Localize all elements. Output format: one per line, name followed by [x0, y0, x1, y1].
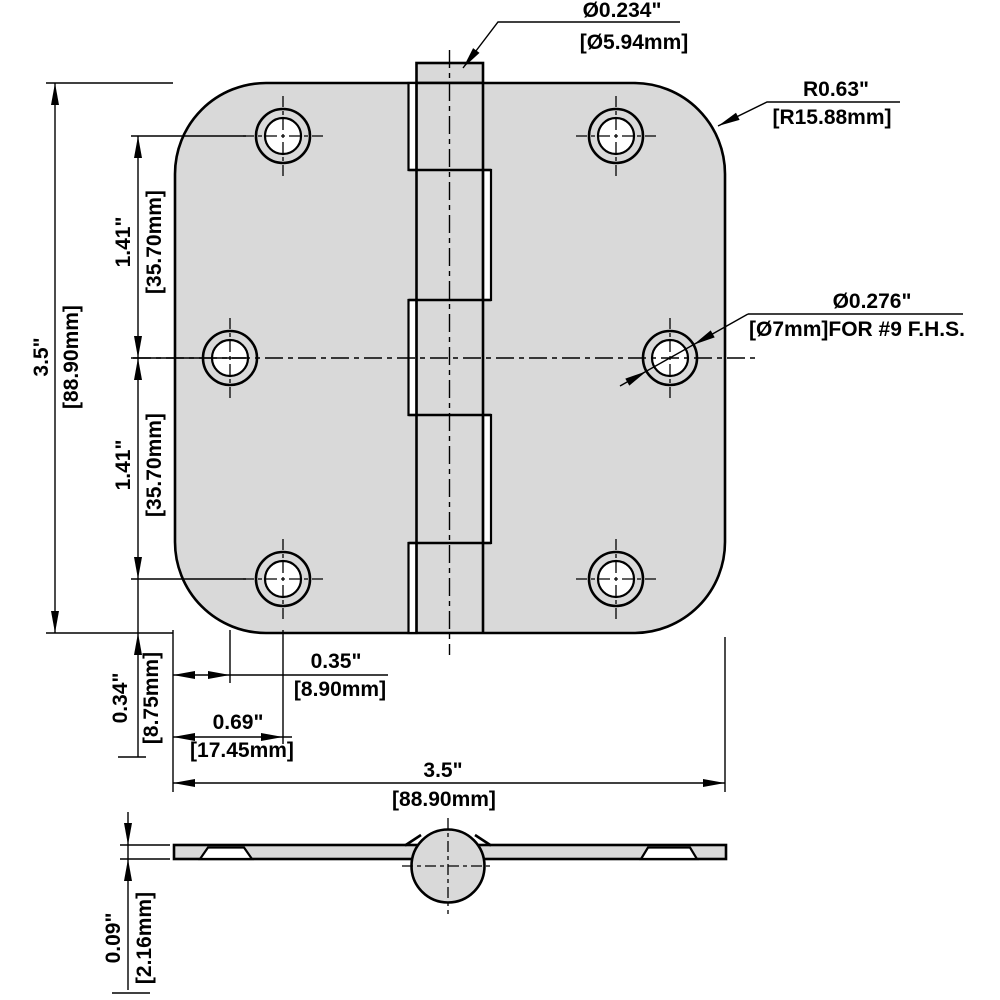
hinge-front-view	[133, 50, 757, 655]
overall-height-mm: [88.90mm]	[60, 305, 83, 409]
edge-to-outer-holes-mm: [17.45mm]	[190, 739, 294, 762]
hole-spacing-lower-mm: [35.70mm]	[143, 413, 166, 517]
leader-pin-diameter: Ø0.234" [Ø5.94mm]	[463, 0, 688, 68]
hinge-technical-drawing: 3.5" [88.90mm] 1.41" [35.70mm] 1.41" [35…	[0, 0, 1000, 1000]
edge-to-middle-hole-mm: [8.90mm]	[294, 678, 386, 701]
dimension-leaf-thickness: 0.09" [2.16mm]	[102, 812, 170, 993]
corner-radius-mm: [R15.88mm]	[772, 106, 891, 129]
corner-radius-inches: R0.63"	[803, 78, 869, 101]
hole-spacing-lower-inches: 1.41"	[112, 440, 135, 491]
leader-corner-radius: R0.63" [R15.88mm]	[718, 78, 900, 129]
dimension-overall-width: 3.5" [88.90mm]	[173, 759, 725, 811]
edge-to-middle-hole-inches: 0.35"	[311, 650, 362, 673]
pin-diameter-mm: [Ø5.94mm]	[580, 31, 689, 54]
dimension-edge-to-middle-hole: 0.35" [8.90mm]	[173, 650, 388, 701]
edge-to-outer-holes-inches: 0.69"	[213, 711, 264, 734]
hinge-side-view	[174, 818, 726, 914]
leaf-thickness-inches: 0.09"	[102, 913, 125, 964]
overall-width-inches: 3.5"	[423, 759, 462, 782]
pin-diameter-inches: Ø0.234"	[583, 0, 662, 22]
hole-spacing-upper-inches: 1.41"	[112, 217, 135, 268]
leaf-thickness-mm: [2.16mm]	[133, 892, 156, 984]
overall-height-inches: 3.5"	[30, 337, 53, 376]
dimension-bottom-group: 0.35" [8.90mm] 0.69" [17.45mm] 3.5" [88.…	[173, 630, 725, 811]
screw-hole-inches: Ø0.276"	[833, 290, 912, 313]
drawing-canvas: 3.5" [88.90mm] 1.41" [35.70mm] 1.41" [35…	[0, 0, 1000, 1000]
bottom-hole-to-edge-mm: [8.75mm]	[140, 652, 163, 744]
countersink-section-left	[200, 848, 252, 860]
countersink-section-right	[641, 848, 697, 860]
hole-spacing-upper-mm: [35.70mm]	[143, 190, 166, 294]
overall-width-mm: [88.90mm]	[392, 788, 496, 811]
dimension-edge-to-outer-holes: 0.69" [17.45mm]	[173, 711, 294, 762]
bottom-hole-to-edge-inches: 0.34"	[109, 673, 132, 724]
screw-hole-mm: [Ø7mm]FOR #9 F.H.S.	[749, 318, 965, 341]
